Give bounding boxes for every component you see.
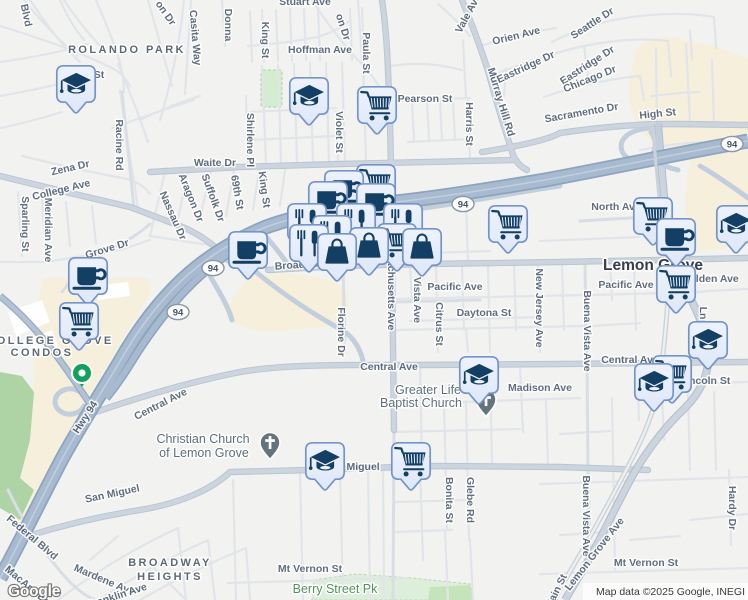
svg-text:Racine Rd: Racine Rd (113, 119, 125, 170)
svg-text:HEIGHTS: HEIGHTS (137, 571, 203, 583)
svg-text:Pacific Ave: Pacific Ave (427, 281, 482, 293)
svg-text:Greater Life: Greater Life (395, 383, 461, 397)
svg-text:Donna: Donna (222, 9, 234, 42)
svg-text:BROADWAY: BROADWAY (128, 557, 212, 569)
svg-text:Meridian Ave: Meridian Ave (42, 198, 54, 263)
svg-text:Madison Ave: Madison Ave (508, 382, 572, 394)
svg-text:Stuart Ave: Stuart Ave (279, 0, 331, 8)
svg-text:Paula St: Paula St (360, 32, 372, 74)
svg-text:Google: Google (8, 583, 61, 600)
svg-text:Central Ave: Central Ave (360, 361, 418, 373)
svg-text:Shirlene Pl: Shirlene Pl (244, 113, 256, 167)
svg-text:Harris St: Harris St (463, 102, 475, 146)
svg-text:Vista Ave: Vista Ave (411, 277, 423, 323)
svg-text:New Jersey Ave: New Jersey Ave (533, 268, 545, 347)
svg-text:Pearson St: Pearson St (398, 93, 453, 105)
svg-text:Daytona St: Daytona St (457, 307, 512, 319)
svg-text:Berry Street Pk: Berry Street Pk (293, 582, 378, 596)
svg-text:Pacific Ave: Pacific Ave (598, 279, 653, 291)
svg-text:Bonita St: Bonita St (443, 477, 455, 524)
svg-text:Baptist Church: Baptist Church (380, 396, 462, 410)
svg-text:94: 94 (458, 199, 469, 210)
svg-text:Florine Dr: Florine Dr (335, 307, 347, 357)
svg-text:Map data ©2025 Google, INEGI: Map data ©2025 Google, INEGI (596, 586, 745, 598)
svg-text:94: 94 (208, 263, 219, 274)
svg-text:Hoffman Ave: Hoffman Ave (288, 44, 352, 56)
svg-text:Citrus St: Citrus St (433, 302, 445, 346)
svg-text:Violet St: Violet St (333, 111, 345, 153)
svg-text:Hardy Dr: Hardy Dr (726, 486, 738, 530)
svg-text:94: 94 (173, 307, 184, 318)
svg-text:Ln: Ln (697, 307, 709, 320)
svg-text:of Lemon Grove: of Lemon Grove (159, 446, 249, 460)
svg-text:Glebe Rd: Glebe Rd (464, 477, 476, 523)
svg-text:94: 94 (727, 139, 738, 150)
svg-text:Christian Church: Christian Church (156, 432, 249, 446)
svg-text:ROLANDO PARK: ROLANDO PARK (68, 44, 186, 56)
svg-text:Mt Vernon St: Mt Vernon St (278, 563, 343, 575)
svg-text:Sparling St: Sparling St (19, 196, 31, 252)
svg-text:Waite Dr: Waite Dr (194, 157, 236, 169)
svg-text:Buena Vista Ave: Buena Vista Ave (581, 290, 593, 371)
svg-text:Mt Vernon St: Mt Vernon St (614, 557, 679, 569)
svg-text:King St: King St (259, 22, 271, 59)
svg-text:Buena Vista Ave: Buena Vista Ave (580, 475, 592, 556)
svg-text:CONDOS: CONDOS (11, 347, 74, 359)
